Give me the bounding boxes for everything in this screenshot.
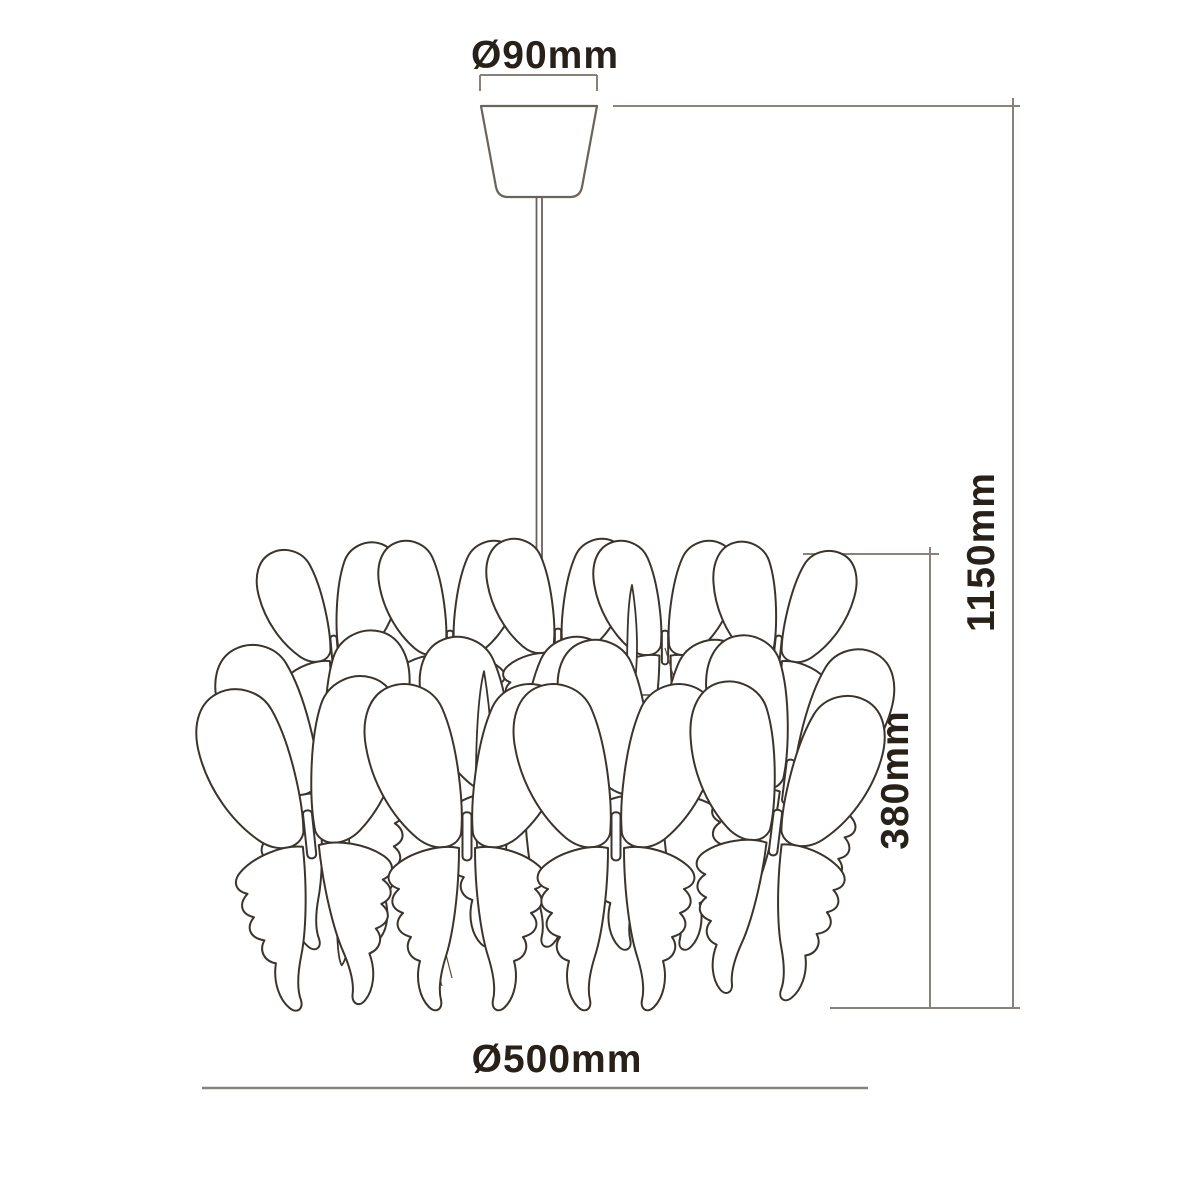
dim-shade-diameter: Ø500mm xyxy=(202,1038,868,1088)
canopy-diameter-label: Ø90mm xyxy=(471,34,619,77)
dim-canopy-diameter: Ø90mm xyxy=(471,34,619,91)
drawing-svg: Ø90mm 1150mm 380mm xyxy=(0,0,1200,1200)
butterfly-shade xyxy=(192,539,899,1018)
lamp-dimension-drawing: Ø90mm 1150mm 380mm xyxy=(0,0,1200,1200)
shade-diameter-label: Ø500mm xyxy=(472,1038,643,1081)
overall-height-label: 1150mm xyxy=(960,472,1003,632)
ceiling-canopy xyxy=(481,106,597,197)
suspension-cord xyxy=(537,197,543,610)
